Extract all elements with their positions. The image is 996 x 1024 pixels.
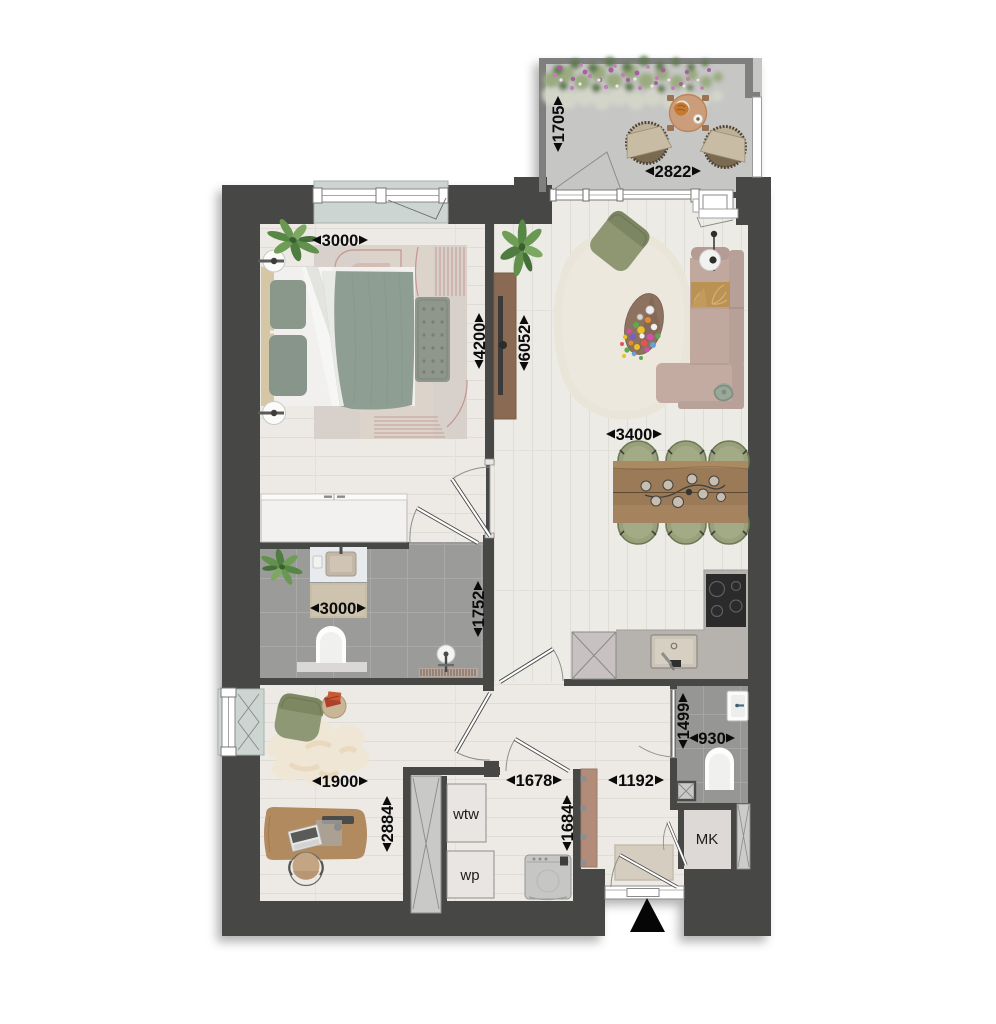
svg-text:wtw: wtw — [452, 806, 479, 823]
svg-text:1678: 1678 — [516, 772, 553, 790]
svg-text:1192: 1192 — [618, 772, 654, 790]
svg-text:3000: 3000 — [322, 232, 359, 250]
svg-text:2822: 2822 — [655, 163, 692, 181]
svg-text:1705: 1705 — [550, 106, 568, 143]
svg-text:2884: 2884 — [379, 805, 397, 843]
svg-text:4200: 4200 — [471, 323, 489, 360]
svg-text:MK: MK — [696, 831, 719, 848]
svg-text:1499: 1499 — [675, 703, 693, 740]
svg-text:6052: 6052 — [516, 325, 534, 362]
svg-text:1752: 1752 — [470, 591, 488, 628]
svg-text:1684: 1684 — [559, 804, 577, 842]
svg-text:wp: wp — [459, 867, 479, 884]
svg-text:930: 930 — [698, 730, 726, 748]
svg-text:3000: 3000 — [320, 600, 357, 618]
svg-text:1900: 1900 — [322, 773, 359, 791]
svg-text:3400: 3400 — [616, 426, 653, 444]
